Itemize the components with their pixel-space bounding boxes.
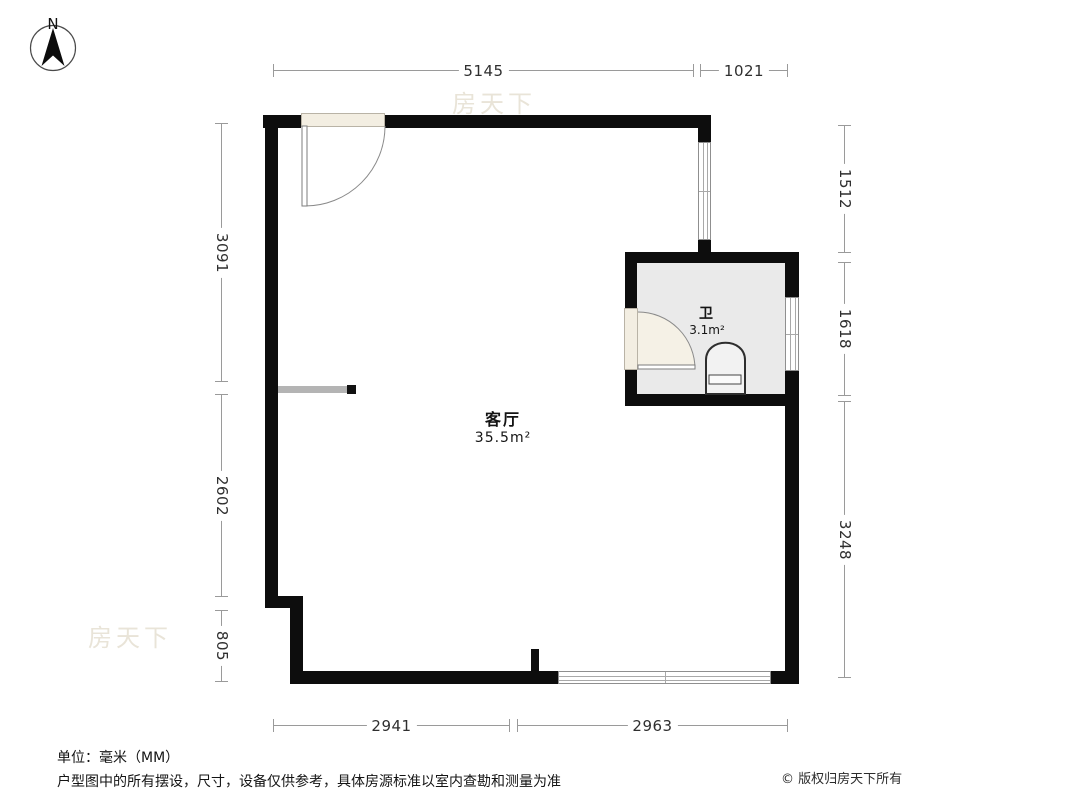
dim-right-1: 1512	[838, 125, 852, 253]
bathroom-door-swing-area	[638, 312, 695, 369]
dim-bottom-1: 2941	[273, 719, 510, 733]
entry-door-swing-arc	[305, 126, 385, 206]
room-name: 客厅	[475, 406, 531, 430]
dim-bottom-2: 2963	[517, 719, 788, 733]
dim-tick	[700, 64, 701, 77]
dim-tick	[273, 64, 274, 77]
dim-left-2: 2602	[215, 394, 229, 597]
dim-left-3: 805	[215, 610, 229, 682]
dim-right-2: 1618	[838, 262, 852, 396]
entry-door-leaf	[302, 126, 307, 206]
dim-tick	[787, 719, 788, 732]
bathroom-door	[638, 312, 695, 369]
dim-top-1: 5145	[273, 64, 694, 78]
dim-left-1: 3091	[215, 123, 229, 382]
dim-right-3: 3248	[838, 401, 852, 678]
dim-tick	[215, 596, 228, 597]
entry-door	[302, 126, 385, 206]
floorplan-canvas: 房天下 房天下 N	[0, 0, 1066, 800]
dim-tick	[838, 401, 851, 402]
disclaimer-text: 户型图中的所有摆设，尺寸，设备仅供参考，具体房源标准以室内查勘和测量为准	[57, 771, 561, 791]
dim-tick	[215, 123, 228, 124]
toilet-tank	[709, 375, 741, 384]
dim-tick	[517, 719, 518, 732]
room-area: 3.1m²	[689, 323, 725, 337]
copyright-text: © 版权归房天下所有	[781, 768, 902, 787]
dim-value: 1512	[836, 164, 854, 214]
dim-tick	[838, 125, 851, 126]
living-room-label: 客厅 35.5m²	[475, 406, 531, 446]
bathroom-door-leaf	[638, 365, 695, 369]
dim-tick	[215, 381, 228, 382]
dim-value: 1618	[836, 304, 854, 354]
unit-note: 单位：毫米（MM）	[57, 747, 179, 767]
dim-tick	[838, 262, 851, 263]
room-area: 35.5m²	[475, 430, 531, 446]
toilet-bowl	[706, 343, 745, 394]
dim-tick	[838, 395, 851, 396]
dim-tick	[838, 252, 851, 253]
dim-tick	[215, 394, 228, 395]
dim-top-2: 1021	[700, 64, 788, 78]
dim-tick	[273, 719, 274, 732]
dim-value: 2941	[366, 717, 416, 735]
compass: N	[31, 15, 76, 71]
dim-value: 3091	[213, 227, 231, 277]
room-name: 卫	[689, 303, 725, 323]
dim-tick	[838, 677, 851, 678]
bathroom-label: 卫 3.1m²	[689, 303, 725, 337]
dim-tick	[215, 681, 228, 682]
dim-value: 2602	[213, 470, 231, 520]
plan-overlay: N	[0, 0, 1066, 800]
compass-north-label: N	[47, 15, 58, 33]
dim-tick	[693, 64, 694, 77]
toilet	[706, 343, 745, 394]
dim-value: 5145	[458, 62, 508, 80]
dim-value: 3248	[836, 514, 854, 564]
dim-tick	[787, 64, 788, 77]
dim-tick	[509, 719, 510, 732]
dim-tick	[215, 610, 228, 611]
dim-value: 2963	[627, 717, 677, 735]
dim-value: 1021	[719, 62, 769, 80]
dim-value: 805	[213, 626, 231, 666]
